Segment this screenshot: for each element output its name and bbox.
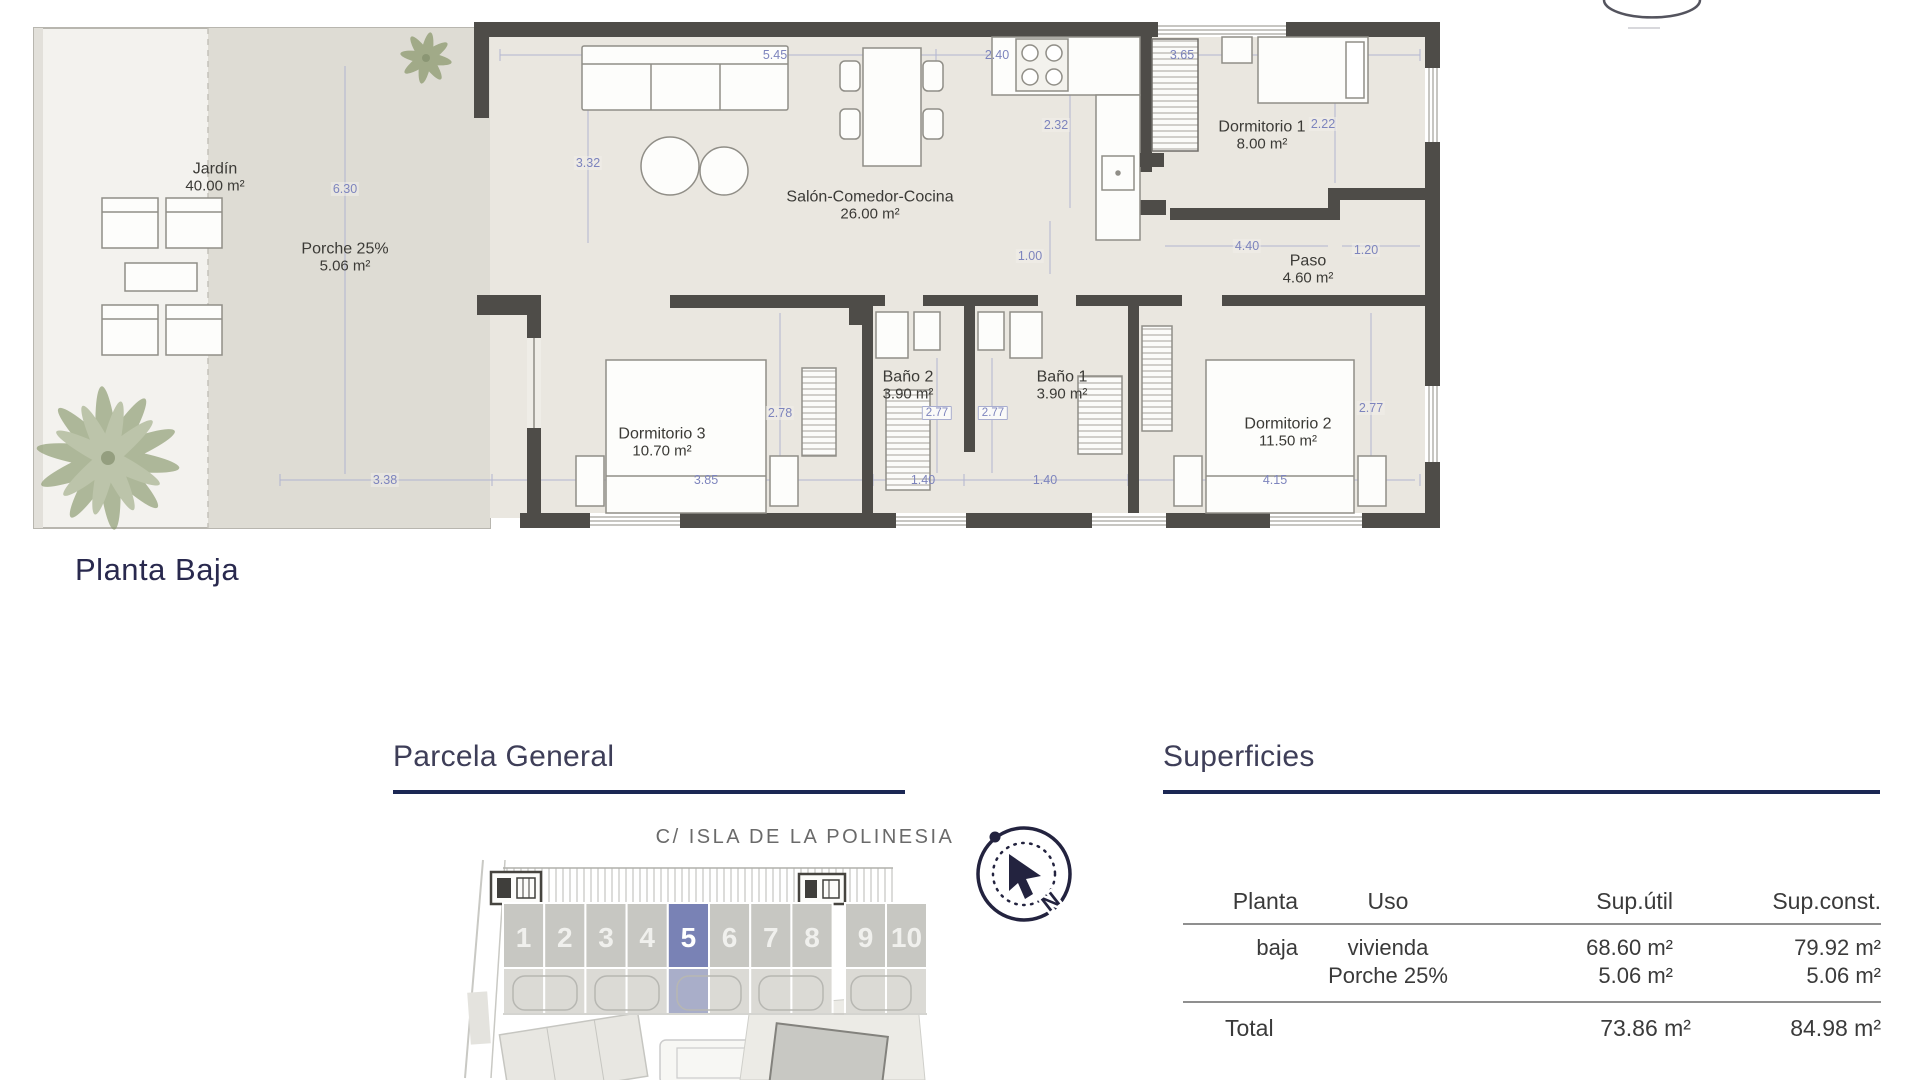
room-label-dormitorio1: Dormitorio 18.00 m² [1218,119,1305,154]
col-header-uso: Uso [1298,888,1478,915]
cell-sup-const: 5.06 m² [1673,963,1881,989]
pouf [641,137,699,195]
north-letter: N [1037,887,1065,916]
col-header-planta: Planta [1163,888,1298,915]
dim-label: 6.30 [331,182,359,196]
unit-number-1: 1 [516,922,532,953]
parcela-rule [393,790,905,794]
unit-number-2: 2 [557,922,573,953]
chair [840,61,860,91]
cell-total-label: Total [1163,1015,1348,1042]
dim-label: 3.85 [692,473,720,487]
superficies-title: Superficies [1163,740,1315,774]
cell-sup-const: 79.92 m² [1673,935,1881,961]
unit-number-5: 5 [681,922,697,953]
unit-number-10: 10 [891,922,922,953]
dim-label: 3.38 [371,473,399,487]
stove [1016,39,1068,91]
wardrobe-dorm2 [1142,326,1172,431]
cell-sup-util: 5.06 m² [1478,963,1673,989]
table-row: baja vivienda 68.60 m² 79.92 m² [1163,935,1881,961]
north-compass-icon: N [969,818,1081,930]
room-label-paso: Paso4.60 m² [1283,253,1334,288]
room-label-porche: Porche 25%5.06 m² [301,241,388,276]
floor-plan: Jardín40.00 m² Porche 25%5.06 m² Salón-C… [30,8,1450,548]
floor-plan-drawing [30,8,1450,548]
superficies-rule [1163,790,1880,794]
nightstand [1222,37,1252,63]
chair [923,61,943,91]
chair [923,109,943,139]
table-total-row: Total 73.86 m² 84.98 m² [1163,1015,1881,1042]
page: { "floor_plan_title": "Planta Baja", "ro… [0,0,1920,1080]
pouf [700,147,748,195]
toilet-bano2 [914,312,940,350]
sink-bano1 [1010,312,1042,358]
superficies-table: Planta Uso Sup.útil Sup.const. baja vivi… [1163,888,1881,1042]
room-label-jardin: Jardín40.00 m² [185,161,244,196]
parking-block [499,1013,647,1080]
cell-planta: baja [1163,935,1298,961]
cell-total-sup-util: 73.86 m² [1513,1015,1691,1042]
table-header-row: Planta Uso Sup.útil Sup.const. [1163,888,1881,915]
cell-uso: Porche 25% [1298,963,1478,989]
room-label-dormitorio3: Dormitorio 310.70 m² [618,426,705,461]
dim-label: 3.65 [1168,48,1196,62]
dim-label: 2.77 [1357,401,1385,415]
dim-label: 1.40 [909,473,937,487]
parcela-title: Parcela General [393,740,614,774]
nightstand [1358,456,1386,506]
col-header-sup-util: Sup.útil [1478,888,1673,915]
room-label-bano1: Baño 13.90 m² [1037,369,1088,404]
table-divider [1183,923,1881,925]
dim-label: 4.15 [1261,473,1289,487]
unit-number-3: 3 [598,922,614,953]
dim-label: 2.22 [1309,117,1337,131]
cell-sup-util: 68.60 m² [1478,935,1673,961]
dim-label: 1.20 [1352,243,1380,257]
nightstand [576,456,604,506]
dim-label: 2.40 [983,48,1011,62]
entry-structure [491,872,541,904]
unit-number-6: 6 [722,922,738,953]
street-label: C/ ISLA DE LA POLINESIA [656,826,955,849]
porch-area [208,28,490,528]
dim-label: 2.78 [766,406,794,420]
toilet-bano1 [978,312,1004,350]
dim-label: 3.32 [574,156,602,170]
cell-uso: vivienda [1298,935,1478,961]
unit-number-9: 9 [858,922,874,953]
room-label-dormitorio2: Dormitorio 211.50 m² [1244,416,1331,451]
dim-label: 2.77 [922,406,952,420]
dim-label: 4.40 [1233,239,1261,253]
room-label-bano2: Baño 23.90 m² [883,369,934,404]
dim-label: 1.40 [1031,473,1059,487]
logo-arc-icon [1598,0,1708,40]
unit-number-7: 7 [763,922,779,953]
site-plan: 1 2 3 4 5 6 7 8 9 10 [455,852,955,1080]
north-arrow [1009,854,1041,899]
table-divider [1183,1001,1881,1003]
unit-number-8: 8 [804,922,820,953]
dim-label: 2.32 [1042,118,1070,132]
entry-structure [799,874,845,904]
room-label-salon: Salón-Comedor-Cocina26.00 m² [786,189,953,224]
cell-total-sup-const: 84.98 m² [1691,1015,1881,1042]
sofa [582,46,788,110]
plan-title: Planta Baja [75,552,239,588]
dim-label: 5.45 [761,48,789,62]
col-header-sup-const: Sup.const. [1673,888,1881,915]
table-row: Porche 25% 5.06 m² 5.06 m² [1163,963,1881,989]
unit-garden-strips [503,968,927,1014]
wardrobe-dorm3 [802,368,836,456]
dining-table [863,48,921,166]
chair [840,109,860,139]
dim-label: 1.00 [1016,249,1044,263]
unit-number-4: 4 [639,922,655,953]
nightstand [1174,456,1202,506]
dim-label: 2.77 [978,406,1008,420]
sink-bano2 [876,312,908,358]
nightstand [770,456,798,506]
